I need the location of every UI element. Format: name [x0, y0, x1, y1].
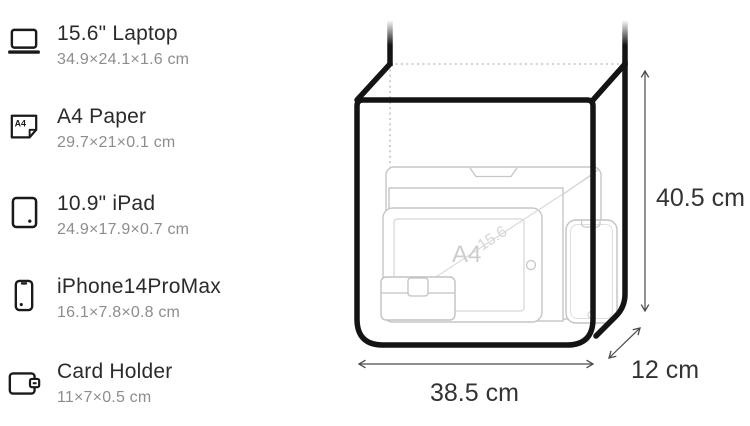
bag-diagram: A4 15.6 [330, 0, 750, 426]
card-holder-outline [381, 277, 455, 320]
width-label: 38.5 cm [430, 379, 519, 407]
item-title: 15.6" Laptop [57, 21, 189, 46]
item-title: Card Holder [57, 359, 172, 384]
item-dimensions: 11×7×0.5 cm [57, 388, 172, 408]
iphone-icon [14, 278, 34, 313]
item-title: A4 Paper [57, 104, 175, 129]
depth-label: 12 cm [631, 356, 699, 384]
list-item: iPhone14ProMax 16.1×7.8×0.8 cm [0, 274, 221, 323]
a4-watermark: A4 [452, 241, 481, 268]
item-dimensions: 34.9×24.1×1.6 cm [57, 50, 189, 70]
list-item: A4 A4 Paper 29.7×21×0.1 cm [0, 104, 175, 153]
height-label: 40.5 cm [656, 184, 745, 212]
strap-right [622, 20, 628, 66]
ipad-icon [11, 196, 38, 229]
bag-top-left-edge [357, 64, 390, 100]
svg-text:A4: A4 [15, 119, 26, 129]
item-title: iPhone14ProMax [57, 274, 221, 299]
list-item: Card Holder 11×7×0.5 cm [0, 359, 172, 408]
item-dimensions: 24.9×17.9×0.7 cm [57, 220, 189, 240]
bag-capacity-infographic: 15.6" Laptop 34.9×24.1×1.6 cm A4 A4 Pape… [0, 0, 750, 426]
depth-arrow [609, 328, 640, 358]
card-holder-icon [8, 368, 41, 399]
list-item: 15.6" Laptop 34.9×24.1×1.6 cm [0, 21, 189, 70]
list-item: 10.9" iPad 24.9×17.9×0.7 cm [0, 191, 189, 240]
item-dimensions: 29.7×21×0.1 cm [57, 133, 175, 153]
item-dimensions: 16.1×7.8×0.8 cm [57, 303, 221, 323]
laptop-icon [7, 28, 41, 56]
strap-left [387, 20, 393, 66]
bag-top-right-edge [593, 64, 625, 100]
hidden-edges-dotted [390, 64, 623, 167]
a4-paper-icon: A4 [9, 113, 39, 141]
item-title: 10.9" iPad [57, 191, 189, 216]
